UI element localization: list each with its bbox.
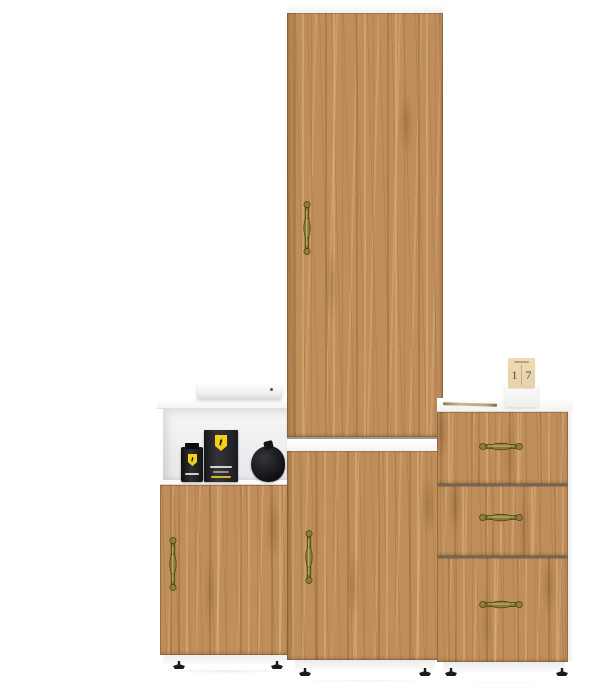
drawer-chest [437,398,573,682]
media-player-box [197,383,282,399]
product-photo: 1 7 [0,0,609,700]
cologne-bottle-cap [185,443,199,449]
tall-cabinet-left-shade [287,13,295,437]
left-door-brass-handle-vertical [167,537,179,591]
shield-badge-icon [215,435,227,451]
upper-door-brass-handle-vertical [301,201,313,255]
calendar-digit-left: 1 [508,365,521,385]
tall-cabinet-right-shade [438,13,443,437]
cologne-box [204,430,238,482]
chest-drawer-2 [437,486,568,556]
black-pouch [251,446,285,482]
tall-cabinet-plinth [295,660,435,670]
chest-plinth [443,662,565,672]
calendar-base [505,385,538,407]
tall-cabinet [287,4,443,680]
shield-badge-icon [188,454,197,466]
drawer-3-brass-handle-horizontal [479,598,523,611]
media-box-indicator-dot [270,388,273,391]
calendar-digits: 1 7 [508,365,535,385]
cologne-bottle [181,447,203,482]
left-cabinet-door [160,485,292,655]
drawer-1-brass-handle-horizontal [479,440,523,453]
left-cabinet-plinth [163,655,289,664]
tall-cabinet-left-shade [287,451,295,660]
chest-side-panel [568,411,573,661]
lower-door-brass-handle-vertical [303,530,315,584]
chest-drawer-1 [437,412,568,484]
calendar-month-text [514,361,529,363]
calendar-digit-right: 7 [522,365,535,385]
tall-cabinet-upper-door [287,13,443,437]
chest-drawer-3 [437,558,568,662]
desk-flip-calendar: 1 7 [508,358,535,388]
tall-cabinet-lower-door [287,451,443,660]
drawer-2-brass-handle-horizontal [479,511,523,524]
